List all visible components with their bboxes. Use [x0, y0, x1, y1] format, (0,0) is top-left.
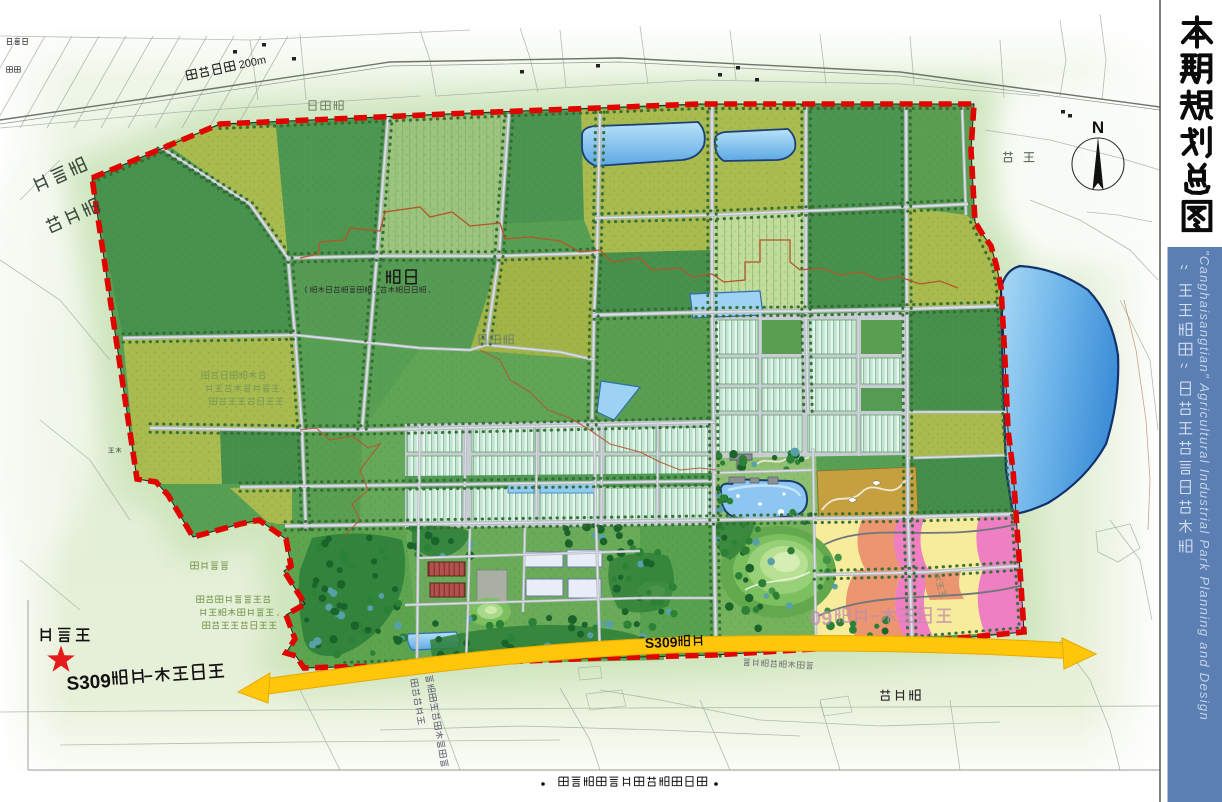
svg-text:09: 09	[810, 608, 832, 630]
svg-text:S309: S309	[645, 634, 678, 651]
svg-text:N: N	[1092, 118, 1104, 137]
svg-text:"Canghaisangtian" Agricultural: "Canghaisangtian" Agricultural Industria…	[1197, 250, 1212, 721]
svg-text:S309: S309	[66, 671, 112, 695]
